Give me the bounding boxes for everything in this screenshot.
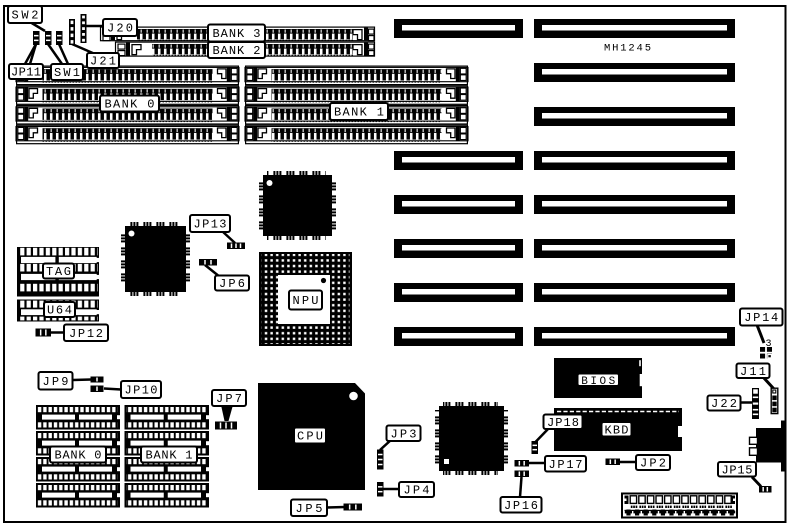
svg-text:SW1: SW1	[54, 66, 80, 80]
svg-text:JP11: JP11	[11, 66, 41, 80]
svg-text:J11: J11	[740, 365, 766, 379]
svg-text:JP14: JP14	[744, 311, 778, 325]
svg-text:NPU: NPU	[293, 294, 319, 308]
svg-text:J21: J21	[90, 55, 116, 69]
svg-text:JP2: JP2	[640, 457, 666, 471]
svg-text:BANK 2: BANK 2	[213, 44, 261, 58]
svg-text:J20: J20	[107, 22, 133, 36]
svg-text:JP17: JP17	[549, 458, 583, 472]
svg-text:JP9: JP9	[43, 375, 69, 389]
svg-text:U64: U64	[47, 304, 72, 318]
svg-text:JP6: JP6	[219, 277, 245, 291]
svg-text:BANK 3: BANK 3	[213, 27, 261, 41]
svg-text:JP13: JP13	[194, 218, 227, 232]
svg-text:JP5: JP5	[296, 502, 323, 516]
svg-text:BANK 1: BANK 1	[146, 449, 193, 463]
svg-text:3: 3	[766, 339, 772, 350]
svg-text:SW2: SW2	[12, 9, 39, 23]
svg-text:JP18: JP18	[547, 416, 579, 430]
svg-text:JP12: JP12	[69, 327, 103, 341]
svg-text:BANK 0: BANK 0	[55, 449, 102, 463]
svg-text:JP16: JP16	[504, 499, 538, 513]
svg-text:JP15: JP15	[722, 463, 753, 477]
svg-text:CPU: CPU	[297, 430, 323, 444]
svg-text:KBD: KBD	[605, 423, 629, 437]
svg-text:JP3: JP3	[391, 427, 417, 441]
svg-text:JP4: JP4	[404, 484, 430, 498]
svg-text:J22: J22	[711, 397, 737, 411]
svg-text:JP10: JP10	[125, 384, 158, 398]
svg-text:TAG: TAG	[46, 265, 71, 279]
svg-text:JP7: JP7	[216, 392, 242, 406]
